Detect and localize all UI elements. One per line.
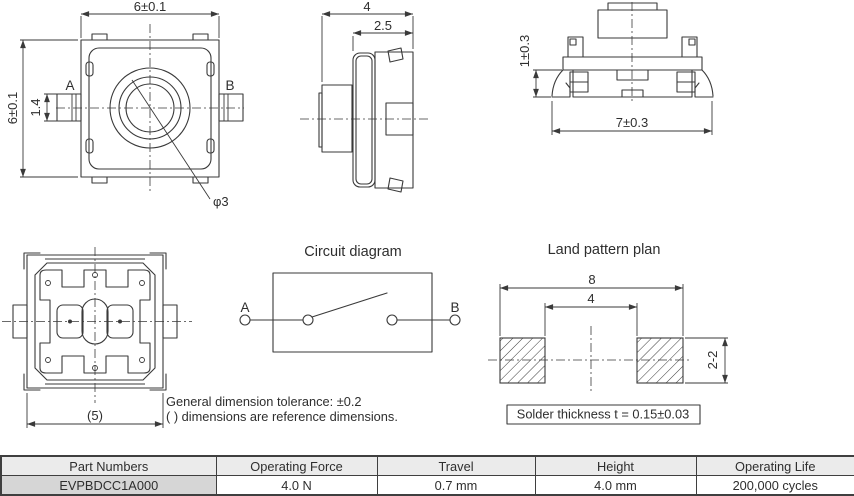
front-view-body	[552, 3, 713, 97]
circuit-diagram: Circuit diagram A B	[230, 242, 480, 377]
cell-operating-life: 200,000 cycles	[696, 476, 854, 496]
side-view-dimension-depth: 4	[322, 0, 413, 82]
cell-part-number: EVPBDCC1A000	[1, 476, 216, 496]
front-view-dimension-width: 7±0.3	[552, 101, 712, 135]
spec-table-wrap: Part Numbers Operating Force Travel Heig…	[0, 455, 854, 496]
col-header-operating-life: Operating Life	[696, 456, 854, 476]
front-view-drawing: 1±0.3 7±0.3	[520, 0, 770, 145]
land-pattern-centerlines	[488, 326, 690, 394]
dim-leg-height: 1±0.3	[520, 35, 532, 67]
dim-pad-outer: 8	[588, 272, 595, 287]
cell-operating-force: 4.0 N	[216, 476, 377, 496]
land-dimension-pad-size: 2-2	[685, 338, 728, 383]
pad-right	[637, 338, 683, 383]
dim-pad-size: 2-2	[705, 351, 720, 370]
top-view-terminal-a	[57, 94, 81, 121]
dim-diameter: φ3	[213, 194, 229, 209]
col-header-height: Height	[535, 456, 696, 476]
circuit-terminal-b: B	[450, 300, 459, 315]
dim-top-width: 6±0.1	[134, 0, 166, 14]
cell-height: 4.0 mm	[535, 476, 696, 496]
col-header-operating-force: Operating Force	[216, 456, 377, 476]
top-view-drawing: 6±0.1 6±0.1 1.4 A B φ3	[0, 0, 265, 235]
side-view-dimension-body: 2.5	[353, 18, 413, 51]
general-notes: General dimension tolerance: ±0.2 ( ) di…	[166, 395, 398, 424]
solder-note-box: Solder thickness t = 0.15±0.03	[507, 405, 700, 424]
dim-total-width: 7±0.3	[616, 115, 648, 130]
land-pattern-pads	[500, 338, 683, 383]
top-view-terminal-b	[219, 94, 243, 121]
dim-terminal-width: 1.4	[28, 98, 43, 116]
front-view-dimension-leg: 1±0.3	[520, 35, 562, 97]
side-view-body	[319, 48, 413, 192]
col-header-part-numbers: Part Numbers	[1, 456, 216, 476]
spec-table-header-row: Part Numbers Operating Force Travel Heig…	[1, 456, 854, 476]
dim-depth: 4	[363, 0, 370, 14]
dim-width-reference: (5)	[87, 408, 103, 423]
dim-body-depth: 2.5	[374, 18, 392, 33]
terminal-b-label: B	[225, 78, 234, 93]
circuit-box	[273, 273, 432, 352]
pad-left	[500, 338, 545, 383]
land-pattern-title: Land pattern plan	[548, 242, 661, 258]
circuit-terminal-a: A	[240, 300, 249, 315]
terminal-a-label: A	[65, 78, 74, 93]
note-tolerance: General dimension tolerance: ±0.2	[166, 395, 398, 410]
solder-note: Solder thickness t = 0.15±0.03	[517, 407, 689, 422]
note-reference: ( ) dimensions are reference dimensions.	[166, 410, 398, 425]
land-pattern-plan: Land pattern plan 8 4 2-2 Solder thickne…	[480, 242, 740, 432]
spec-table-data-row: EVPBDCC1A000 4.0 N 0.7 mm 4.0 mm 200,000…	[1, 476, 854, 496]
dim-pad-inner: 4	[587, 291, 594, 306]
top-view-dimension-terminal: 1.4	[28, 94, 57, 121]
cell-travel: 0.7 mm	[377, 476, 535, 496]
col-header-travel: Travel	[377, 456, 535, 476]
spec-table: Part Numbers Operating Force Travel Heig…	[0, 455, 854, 496]
side-view-drawing: 4 2.5	[295, 0, 445, 235]
bottom-view-dimension-ref: (5)	[27, 393, 163, 428]
dim-side-height: 6±0.1	[5, 92, 20, 124]
circuit-title: Circuit diagram	[304, 244, 402, 260]
